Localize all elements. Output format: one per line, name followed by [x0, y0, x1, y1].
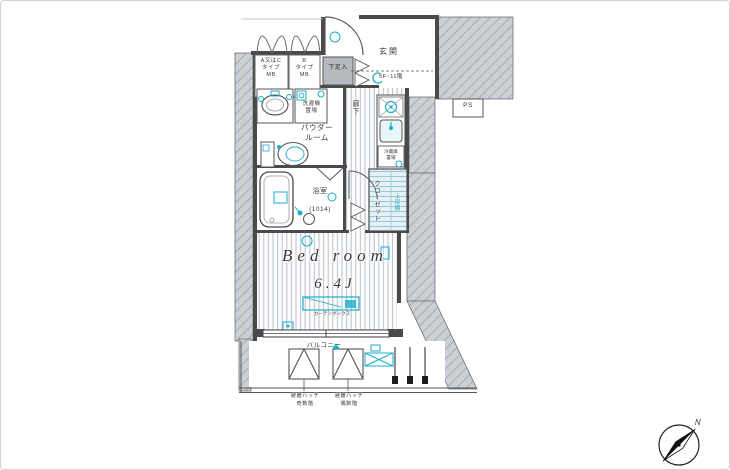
stove-icon	[379, 97, 403, 117]
pipe-space-label: PS	[453, 102, 483, 110]
shoe-box-label: 下足入	[323, 65, 353, 73]
entrance-door-icon	[325, 17, 363, 55]
symbol-circle	[330, 32, 340, 42]
closet-label: クローゼット	[372, 173, 379, 229]
refrigerator-label: 冷蔵庫 置場	[378, 149, 404, 161]
floor-plan-canvas: A又はC タイプ MB B タイプ MB 下足入 玄関 5F~11階 PS 洗濯…	[0, 0, 730, 470]
meter-box-left-label: A又はC タイプ MB	[254, 58, 288, 79]
evacuation-hatch-left-icon	[289, 349, 319, 379]
powder-room-label: パウダー ルーム	[289, 123, 345, 143]
bathroom-label: 浴室 (1014)	[297, 187, 343, 215]
bathtub-icon	[260, 172, 293, 227]
compass-icon	[659, 425, 699, 465]
entrance-label: 玄関	[361, 47, 417, 57]
corridor-label: 廊下	[352, 93, 359, 121]
bathroom-size-label: (1014)	[309, 206, 331, 213]
balcony-label: バルコニー	[301, 342, 347, 350]
evacuation-hatch-right-label: 避難ハッチ 偶数階	[327, 393, 371, 409]
bedroom-window-icon	[263, 330, 389, 337]
closet-shelf-label: 上部棚	[393, 179, 399, 225]
kitchen-sink-icon	[380, 120, 402, 142]
bedroom-size-label: 6.4J	[273, 275, 397, 295]
compass-north-label: N	[691, 418, 705, 428]
bedroom-label: Bed room	[273, 245, 397, 267]
washbasin-icon	[257, 89, 293, 123]
entrance-floor-note: 5F~11階	[377, 74, 405, 81]
laundry-label: 洗濯機 置場	[296, 101, 327, 115]
toilet-icon	[261, 142, 308, 167]
curtain-box-label: カーテンボックス	[303, 311, 361, 317]
evacuation-hatch-right-icon	[333, 349, 363, 379]
meter-box-right-label: B タイプ MB	[289, 58, 320, 79]
evacuation-hatch-left-label: 避難ハッチ 奇数階	[283, 393, 327, 409]
